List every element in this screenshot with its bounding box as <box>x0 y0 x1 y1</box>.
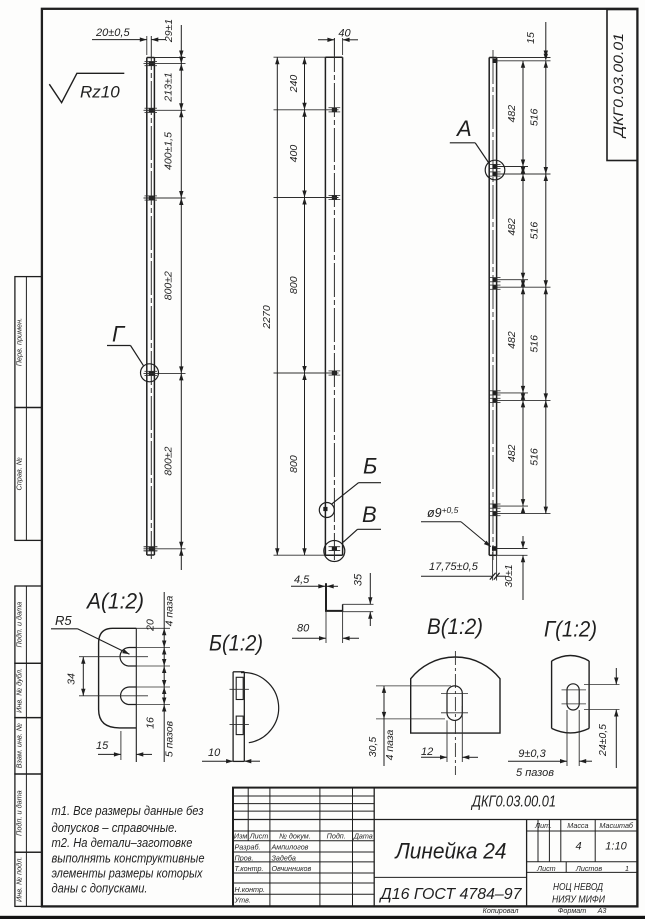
svg-text:80: 80 <box>297 623 310 635</box>
svg-text:16: 16 <box>145 717 157 729</box>
svg-text:Изм: Изм <box>234 832 247 841</box>
svg-text:НОЦ НЕВОД: НОЦ НЕВОД <box>553 881 603 893</box>
svg-text:Н.контр.: Н.контр. <box>235 885 265 894</box>
svg-text:m1. Все размеры данные без: m1. Все размеры данные без <box>52 803 204 818</box>
svg-text:Б: Б <box>363 454 377 479</box>
svg-text:Ампилогов: Ампилогов <box>271 843 309 852</box>
svg-text:5 пазов: 5 пазов <box>164 720 176 757</box>
svg-text:24±0,5: 24±0,5 <box>597 724 609 757</box>
svg-text:482: 482 <box>506 331 518 349</box>
svg-text:ДКГ0.03.00.01: ДКГ0.03.00.01 <box>470 794 556 811</box>
svg-text:R5: R5 <box>55 613 72 628</box>
svg-text:Г: Г <box>112 322 126 347</box>
svg-text:4,5: 4,5 <box>294 574 310 586</box>
svg-text:В(1:2): В(1:2) <box>427 614 483 639</box>
svg-text:482: 482 <box>506 218 518 236</box>
svg-text:Копировал: Копировал <box>483 906 519 915</box>
svg-text:Подп.: Подп. <box>327 832 346 841</box>
svg-text:выполнять конструктивные: выполнять конструктивные <box>52 851 205 866</box>
svg-text:ДКГ0.03.00.01: ДКГ0.03.00.01 <box>610 33 626 139</box>
svg-text:Инв. № дубл.: Инв. № дубл. <box>15 668 24 713</box>
svg-text:Инв. № подл.: Инв. № подл. <box>15 857 24 902</box>
svg-text:482: 482 <box>506 105 518 123</box>
svg-text:15: 15 <box>96 740 109 752</box>
svg-text:А: А <box>455 116 472 141</box>
svg-text:Пров.: Пров. <box>235 853 254 862</box>
svg-text:№ докум.: № докум. <box>279 832 311 841</box>
svg-text:Утв.: Утв. <box>234 896 251 905</box>
svg-text:Rz10: Rz10 <box>80 83 120 102</box>
svg-text:2270: 2270 <box>261 305 273 330</box>
svg-text:12: 12 <box>421 746 433 758</box>
svg-text:30,5: 30,5 <box>367 737 379 758</box>
svg-text:800±2: 800±2 <box>163 446 175 475</box>
svg-text:4: 4 <box>575 841 581 853</box>
svg-text:Овчинников: Овчинников <box>272 864 312 873</box>
svg-text:9±0,3: 9±0,3 <box>518 748 546 760</box>
svg-text:Подп. и дата: Подп. и дата <box>15 602 24 648</box>
svg-text:m2. На детали–заготовке: m2. На детали–заготовке <box>52 835 193 850</box>
svg-text:4 паза: 4 паза <box>164 595 176 626</box>
svg-text:Лит.: Лит. <box>534 821 552 830</box>
svg-text:800±2: 800±2 <box>163 271 175 300</box>
svg-text:800: 800 <box>288 276 300 294</box>
svg-text:516: 516 <box>529 335 541 353</box>
svg-text:Подп. и дата: Подп. и дата <box>15 790 24 836</box>
svg-text:Справ. №: Справ. № <box>15 457 24 490</box>
svg-text:Д16 ГОСТ 4784–97: Д16 ГОСТ 4784–97 <box>379 886 523 903</box>
svg-text:Формат: Формат <box>558 906 587 915</box>
svg-text:А3: А3 <box>597 906 607 915</box>
svg-text:Лист: Лист <box>536 864 556 873</box>
svg-text:Разраб.: Разраб. <box>235 843 261 852</box>
svg-text:516: 516 <box>529 222 541 240</box>
svg-text:Линейка 24: Линейка 24 <box>394 839 507 864</box>
svg-text:Масса: Масса <box>567 821 588 830</box>
svg-text:40: 40 <box>338 28 351 40</box>
svg-text:Г(1:2): Г(1:2) <box>544 617 597 642</box>
svg-text:Лист: Лист <box>249 832 269 841</box>
svg-text:400±1,5: 400±1,5 <box>163 132 175 170</box>
svg-text:240: 240 <box>288 75 300 94</box>
svg-text:213±1: 213±1 <box>163 72 175 102</box>
svg-text:1:10: 1:10 <box>605 841 627 853</box>
svg-text:516: 516 <box>529 108 541 126</box>
svg-text:35: 35 <box>353 573 365 586</box>
svg-text:Задеба: Задеба <box>272 853 296 862</box>
svg-text:допусков – справочные.: допусков – справочные. <box>52 820 178 835</box>
svg-text:20: 20 <box>145 619 157 632</box>
svg-text:30±1: 30±1 <box>503 564 515 587</box>
svg-text:Т.контр.: Т.контр. <box>235 864 264 873</box>
svg-text:Перв. примен.: Перв. примен. <box>15 318 24 367</box>
svg-text:800: 800 <box>288 455 300 473</box>
svg-text:10: 10 <box>208 747 221 759</box>
svg-text:400: 400 <box>288 145 300 163</box>
svg-text:Листов: Листов <box>575 864 602 873</box>
svg-text:29±1: 29±1 <box>163 19 175 43</box>
svg-text:Б(1:2): Б(1:2) <box>209 631 263 656</box>
svg-text:А(1:2): А(1:2) <box>85 589 144 614</box>
svg-text:Масштаб: Масштаб <box>599 821 634 830</box>
svg-text:Дата: Дата <box>353 832 373 841</box>
svg-text:В: В <box>362 502 377 527</box>
svg-text:516: 516 <box>529 448 541 466</box>
svg-text:1: 1 <box>625 864 629 873</box>
svg-text:34: 34 <box>66 673 78 685</box>
svg-text:даны с допусками.: даны с допусками. <box>52 881 148 896</box>
svg-text:15: 15 <box>525 32 537 44</box>
svg-text:17,75±0,5: 17,75±0,5 <box>429 561 479 573</box>
svg-text:5 пазов: 5 пазов <box>516 767 554 779</box>
svg-text:20±0,5: 20±0,5 <box>95 27 130 39</box>
svg-text:4 паза: 4 паза <box>384 729 396 760</box>
svg-text:НИЯУ МИФИ: НИЯУ МИФИ <box>552 894 605 906</box>
svg-text:482: 482 <box>506 444 518 462</box>
svg-text:Взам. инв. №: Взам. инв. № <box>15 723 24 768</box>
svg-text:элементы размеры которых: элементы размеры которых <box>52 866 203 881</box>
